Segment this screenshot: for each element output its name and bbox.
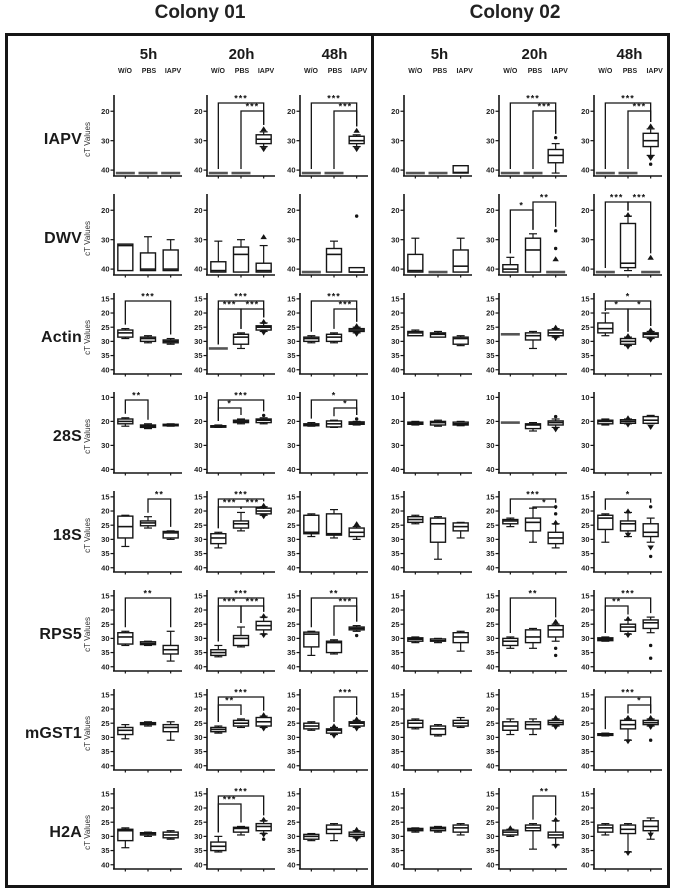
boxplot-H2A-Colony02-20h: 152025303540** [477,783,570,882]
svg-text:35: 35 [287,549,295,558]
svg-text:30: 30 [194,337,202,346]
header-cell: 48hW/OPBSIAPV [572,36,667,90]
svg-text:30: 30 [194,136,202,145]
gene-label-cell: DWVcT Values [8,189,92,288]
svg-text:25: 25 [391,719,399,728]
svg-text:40: 40 [486,465,494,474]
svg-text:35: 35 [101,648,109,657]
svg-text:15: 15 [287,789,295,798]
plot-cell: 203040*** [477,189,572,288]
svg-text:40: 40 [194,563,202,572]
svg-text:15: 15 [486,690,494,699]
condition-label-iapv: IAPV [547,68,572,75]
svg-text:15: 15 [581,294,589,303]
svg-text:20: 20 [287,107,295,116]
svg-text:30: 30 [194,535,202,544]
plot-cell: 152025303540 [477,684,572,783]
gene-row-mgst1: mGST1cT Values152025303540152025303540**… [8,684,371,783]
svg-text:35: 35 [581,846,589,855]
svg-text:30: 30 [194,235,202,244]
timepoint-header-row: 5hW/OPBSIAPV20hW/OPBSIAPV48hW/OPBSIAPV [8,36,371,90]
svg-text:25: 25 [101,521,109,530]
gene-label: H2A [49,824,82,842]
svg-text:40: 40 [581,465,589,474]
plot-cell: 152025303540 [382,486,477,585]
boxplot-DWV-Colony02-20h: 203040*** [477,189,570,288]
svg-text:20: 20 [287,309,295,318]
svg-text:20: 20 [194,606,202,615]
svg-text:30: 30 [287,832,295,841]
svg-text:10: 10 [581,393,589,402]
svg-text:30: 30 [486,535,494,544]
svg-text:40: 40 [486,365,494,374]
svg-text:15: 15 [391,591,399,600]
gene-row-28s: 102030401020304010203040 [382,387,667,486]
svg-text:35: 35 [287,747,295,756]
svg-text:30: 30 [391,832,399,841]
gene-row-dwv: DWVcT Values203040203040203040 [8,189,371,288]
plot-cell: 10203040** [92,387,185,486]
y-axis-label: cT Values [83,320,92,355]
panel-colony-01: 5hW/OPBSIAPV20hW/OPBSIAPV48hW/OPBSIAPVIA… [8,36,371,885]
svg-text:35: 35 [194,549,202,558]
boxplot-28S-Colony02-20h: 10203040 [477,387,570,486]
plot-cell: 152025303540* [572,486,667,585]
svg-text:20: 20 [486,107,494,116]
boxplot-18S-Colony02-5h: 152025303540 [382,486,475,585]
svg-text:20: 20 [194,804,202,813]
timepoint-label-48h: 48h [572,36,667,68]
svg-text:15: 15 [486,294,494,303]
significance-stars: *** [223,300,237,310]
svg-text:30: 30 [581,535,589,544]
plot-cell: 152025303540** [92,486,185,585]
svg-text:30: 30 [581,832,589,841]
plot-cell: 152025303540 [382,783,477,882]
svg-text:35: 35 [287,846,295,855]
svg-text:40: 40 [287,465,295,474]
plot-cell: 152025303540 [92,684,185,783]
svg-text:30: 30 [101,535,109,544]
y-axis-label: cT Values [83,617,92,652]
svg-text:30: 30 [287,235,295,244]
boxplot-mGST1-Colony01-20h: 152025303540***** [185,684,278,783]
svg-text:30: 30 [391,337,399,346]
condition-labels: W/OPBSIAPV [185,68,278,75]
svg-text:15: 15 [287,492,295,501]
condition-label-pbs: PBS [428,68,453,75]
y-axis-label: cT Values [83,815,92,850]
condition-labels: W/OPBSIAPV [477,68,572,75]
boxplot-RPS5-Colony01-48h: 152025303540***** [278,585,371,684]
boxplot-RPS5-Colony01-5h: 152025303540** [92,585,185,684]
gene-label: IAPV [44,131,82,149]
plot-cell: 203040****** [572,189,667,288]
significance-stars: * [637,696,642,706]
svg-text:30: 30 [581,441,589,450]
plot-cell: 203040****** [477,90,572,189]
significance-stars: * [227,399,232,409]
boxplot-Actin-Colony01-5h: 152025303540*** [92,288,185,387]
header-cell: 48hW/OPBSIAPV [278,36,371,90]
svg-text:20: 20 [391,107,399,116]
boxplot-28S-Colony01-48h: 10203040** [278,387,371,486]
svg-text:40: 40 [287,761,295,770]
svg-text:20: 20 [287,804,295,813]
boxplot-IAPV-Colony02-20h: 203040****** [477,90,570,189]
svg-text:20: 20 [101,206,109,215]
plot-cell: 203040 [92,90,185,189]
svg-text:35: 35 [486,549,494,558]
significance-stars: *** [621,589,635,599]
timepoint-label-5h: 5h [92,36,185,68]
plot-cell: 152025303540***** [185,684,278,783]
svg-text:25: 25 [581,719,589,728]
significance-stars: *** [538,102,552,112]
gene-label-cell: RPS5cT Values [8,585,92,684]
condition-label-pbs: PBS [137,68,161,75]
svg-text:30: 30 [581,634,589,643]
svg-text:25: 25 [486,818,494,827]
svg-text:35: 35 [486,648,494,657]
boxplot-mGST1-Colony02-20h: 152025303540 [477,684,570,783]
y-axis-label: cT Values [83,518,92,553]
header-cell: 20hW/OPBSIAPV [185,36,278,90]
significance-stars: * [637,300,642,310]
svg-text:20: 20 [391,804,399,813]
boxplot-18S-Colony01-5h: 152025303540** [92,486,185,585]
svg-text:10: 10 [391,393,399,402]
svg-text:30: 30 [581,733,589,742]
svg-text:30: 30 [287,441,295,450]
plot-cell: 203040****** [278,90,371,189]
svg-text:25: 25 [391,620,399,629]
svg-text:20: 20 [391,309,399,318]
svg-text:40: 40 [581,860,589,869]
svg-text:40: 40 [194,465,202,474]
significance-stars: ** [155,490,164,500]
plot-cell: 152025303540********* [185,585,278,684]
condition-label-wo: W/O [498,68,523,75]
svg-text:25: 25 [194,620,202,629]
condition-labels: W/OPBSIAPV [278,68,371,75]
svg-text:30: 30 [101,235,109,244]
plot-cell: 152025303540 [382,585,477,684]
condition-label-iapv: IAPV [452,68,477,75]
significance-stars: *** [223,498,237,508]
plot-cell: 152025303540***** [278,585,371,684]
svg-text:40: 40 [581,662,589,671]
boxplot-18S-Colony01-48h: 152025303540 [278,486,371,585]
boxplot-IAPV-Colony02-5h: 203040 [382,90,475,189]
svg-text:10: 10 [101,393,109,402]
svg-text:20: 20 [581,107,589,116]
boxplot-DWV-Colony01-5h: 203040 [92,189,185,288]
gene-row-rps5: 152025303540152025303540**152025303540**… [382,585,667,684]
timepoint-label-20h: 20h [185,36,278,68]
svg-text:40: 40 [391,662,399,671]
condition-label-iapv: IAPV [642,68,667,75]
svg-text:20: 20 [581,417,589,426]
svg-text:20: 20 [194,206,202,215]
svg-text:15: 15 [486,492,494,501]
svg-text:20: 20 [486,705,494,714]
svg-text:40: 40 [391,563,399,572]
plot-cell: 152025303540**** [572,684,667,783]
significance-stars: *** [339,597,353,607]
plot-cell: 10203040** [278,387,371,486]
colony-02-title: Colony 02 [395,2,635,30]
plot-cell: 152025303540** [92,585,185,684]
significance-stars: *** [339,688,353,698]
svg-text:20: 20 [194,417,202,426]
gene-row-dwv: 203040203040***203040****** [382,189,667,288]
svg-text:25: 25 [287,323,295,332]
gene-row-iapv: 203040203040******203040****** [382,90,667,189]
svg-text:20: 20 [391,507,399,516]
svg-text:40: 40 [101,465,109,474]
significance-stars: * [626,490,631,500]
boxplot-28S-Colony01-5h: 10203040** [92,387,185,486]
significance-stars: * [614,300,619,310]
boxplot-Actin-Colony02-48h: 152025303540*** [572,288,665,387]
gene-label-cell: H2AcT Values [8,783,92,882]
svg-text:15: 15 [194,789,202,798]
svg-text:35: 35 [391,648,399,657]
gene-row-actin: ActincT Values152025303540***15202530354… [8,288,371,387]
svg-text:30: 30 [486,136,494,145]
svg-text:40: 40 [194,761,202,770]
svg-text:30: 30 [287,136,295,145]
plot-cell: 10203040 [382,387,477,486]
timepoint-label-20h: 20h [477,36,572,68]
significance-stars: *** [234,688,248,698]
svg-text:15: 15 [194,492,202,501]
svg-text:40: 40 [194,365,202,374]
plot-cell: 203040****** [185,90,278,189]
svg-text:40: 40 [486,860,494,869]
svg-text:25: 25 [194,323,202,332]
svg-text:20: 20 [101,507,109,516]
svg-text:15: 15 [486,591,494,600]
gene-row-mgst1: 152025303540152025303540152025303540**** [382,684,667,783]
plot-cell: 152025303540 [278,486,371,585]
svg-text:15: 15 [391,789,399,798]
svg-text:15: 15 [287,690,295,699]
header-cell: 5hW/OPBSIAPV [382,36,477,90]
condition-label-iapv: IAPV [347,68,371,75]
svg-text:20: 20 [486,206,494,215]
svg-text:20: 20 [581,606,589,615]
svg-text:15: 15 [101,690,109,699]
svg-text:40: 40 [101,166,109,175]
boxplot-28S-Colony02-5h: 10203040 [382,387,475,486]
boxplot-H2A-Colony01-5h: 152025303540 [92,783,185,882]
svg-text:25: 25 [287,818,295,827]
significance-stars: * [542,498,547,508]
svg-text:40: 40 [391,265,399,274]
svg-text:15: 15 [581,492,589,501]
svg-text:30: 30 [486,441,494,450]
svg-text:35: 35 [581,351,589,360]
svg-text:20: 20 [101,107,109,116]
svg-text:25: 25 [391,521,399,530]
gene-label: RPS5 [39,626,82,644]
svg-text:35: 35 [581,648,589,657]
boxplot-18S-Colony01-20h: 152025303540********* [185,486,278,585]
svg-text:15: 15 [194,591,202,600]
boxplot-RPS5-Colony02-20h: 152025303540** [477,585,570,684]
boxplot-RPS5-Colony02-48h: 152025303540***** [572,585,665,684]
svg-text:25: 25 [486,620,494,629]
svg-text:30: 30 [101,832,109,841]
significance-stars: *** [246,300,260,310]
boxplot-18S-Colony02-48h: 152025303540* [572,486,665,585]
svg-text:35: 35 [581,747,589,756]
svg-text:40: 40 [391,465,399,474]
svg-text:20: 20 [581,309,589,318]
plot-cell: 152025303540 [572,783,667,882]
svg-text:25: 25 [287,719,295,728]
svg-text:30: 30 [194,441,202,450]
svg-text:25: 25 [581,620,589,629]
svg-text:30: 30 [101,634,109,643]
boxplot-28S-Colony01-20h: 10203040**** [185,387,278,486]
gene-label-cell: 18ScT Values [8,486,92,585]
condition-label-pbs: PBS [323,68,347,75]
svg-text:20: 20 [101,804,109,813]
plot-cell: 203040 [185,189,278,288]
timepoint-label-5h: 5h [382,36,477,68]
svg-text:30: 30 [194,832,202,841]
boxplot-RPS5-Colony01-20h: 152025303540********* [185,585,278,684]
boxplot-DWV-Colony01-20h: 203040 [185,189,278,288]
svg-text:20: 20 [287,606,295,615]
svg-text:35: 35 [194,747,202,756]
boxplot-DWV-Colony02-48h: 203040****** [572,189,665,288]
svg-text:25: 25 [287,521,295,530]
svg-text:20: 20 [581,705,589,714]
boxplot-H2A-Colony01-48h: 152025303540 [278,783,371,882]
plot-cell: 10203040**** [185,387,278,486]
svg-text:40: 40 [194,860,202,869]
panel-colony-02: 5hW/OPBSIAPV20hW/OPBSIAPV48hW/OPBSIAPV20… [374,36,667,885]
boxplot-DWV-Colony01-48h: 203040 [278,189,371,288]
plot-cell: 152025303540****** [185,783,278,882]
svg-text:35: 35 [287,351,295,360]
svg-text:20: 20 [391,417,399,426]
svg-text:40: 40 [486,166,494,175]
svg-text:40: 40 [581,761,589,770]
svg-text:40: 40 [391,761,399,770]
svg-text:15: 15 [391,690,399,699]
significance-stars: *** [223,597,237,607]
plot-cell: 152025303540****** [278,288,371,387]
condition-label-pbs: PBS [230,68,254,75]
svg-text:25: 25 [391,323,399,332]
svg-text:20: 20 [486,507,494,516]
svg-text:30: 30 [194,634,202,643]
gene-row-iapv: IAPVcT Values203040203040******203040***… [8,90,371,189]
svg-text:35: 35 [391,351,399,360]
significance-stars: *** [633,102,647,112]
gene-label-cell: mGST1cT Values [8,684,92,783]
svg-text:15: 15 [101,294,109,303]
svg-text:40: 40 [486,563,494,572]
plot-cell: 152025303540***** [572,585,667,684]
plot-cell: 152025303540 [92,783,185,882]
y-axis-label: cT Values [83,716,92,751]
svg-text:25: 25 [581,818,589,827]
significance-stars: ** [329,589,338,599]
significance-stars: * [343,399,348,409]
svg-text:20: 20 [581,507,589,516]
svg-text:30: 30 [287,535,295,544]
svg-text:15: 15 [581,690,589,699]
significance-stars: *** [223,795,237,805]
svg-text:20: 20 [194,507,202,516]
svg-text:20: 20 [391,606,399,615]
significance-stars: ** [540,193,549,203]
svg-text:40: 40 [101,662,109,671]
svg-text:35: 35 [391,549,399,558]
boxplot-Actin-Colony01-48h: 152025303540****** [278,288,371,387]
significance-stars: *** [234,391,248,401]
significance-stars: ** [132,391,141,401]
svg-text:15: 15 [101,591,109,600]
svg-text:25: 25 [194,818,202,827]
svg-text:30: 30 [581,337,589,346]
svg-text:30: 30 [101,733,109,742]
svg-text:20: 20 [287,206,295,215]
gene-row-actin: 152025303540152025303540152025303540*** [382,288,667,387]
boxplot-18S-Colony02-20h: 152025303540**** [477,486,570,585]
plot-cell: 10203040 [477,387,572,486]
svg-text:35: 35 [101,846,109,855]
svg-text:35: 35 [101,351,109,360]
svg-text:30: 30 [391,733,399,742]
boxplot-mGST1-Colony02-48h: 152025303540**** [572,684,665,783]
svg-text:15: 15 [391,294,399,303]
svg-text:40: 40 [486,662,494,671]
gene-label: 28S [53,428,82,446]
plot-cell: 152025303540********* [185,288,278,387]
condition-label-wo: W/O [113,68,137,75]
svg-text:30: 30 [486,337,494,346]
svg-text:40: 40 [194,662,202,671]
svg-text:25: 25 [486,719,494,728]
boxplot-Actin-Colony01-20h: 152025303540********* [185,288,278,387]
svg-text:25: 25 [581,323,589,332]
svg-text:30: 30 [486,634,494,643]
svg-text:40: 40 [287,662,295,671]
condition-label-iapv: IAPV [161,68,185,75]
plot-cell: 152025303540**** [477,486,572,585]
svg-text:10: 10 [486,393,494,402]
condition-label-iapv: IAPV [254,68,278,75]
svg-text:30: 30 [391,634,399,643]
significance-stars: * [626,292,631,302]
boxplot-IAPV-Colony01-20h: 203040****** [185,90,278,189]
svg-text:30: 30 [391,136,399,145]
boxplot-IAPV-Colony02-48h: 203040****** [572,90,665,189]
colony-01-title: Colony 01 [60,2,340,30]
gene-row-18s: 152025303540152025303540****152025303540… [382,486,667,585]
plot-cell: 203040 [382,90,477,189]
significance-stars: * [519,201,524,211]
svg-text:20: 20 [287,507,295,516]
svg-text:35: 35 [391,747,399,756]
